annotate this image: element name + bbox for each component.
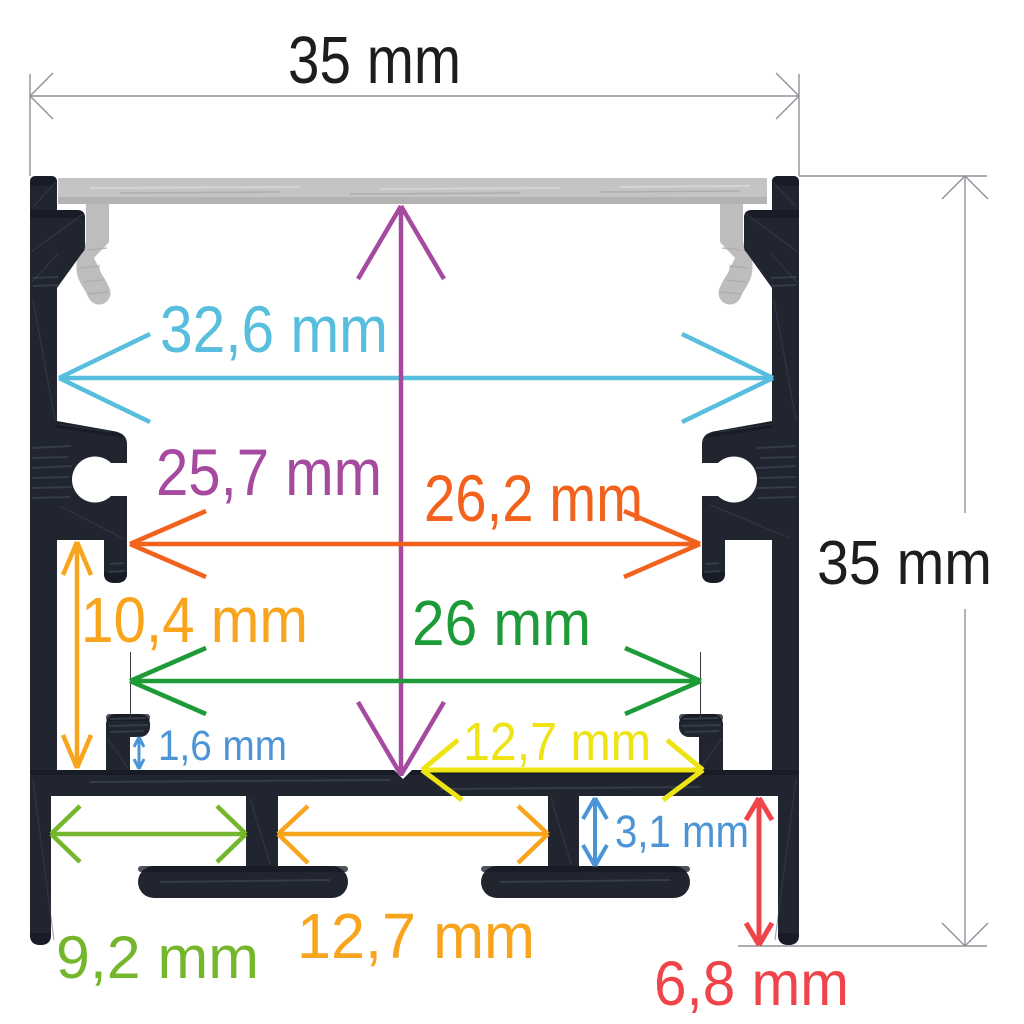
- svg-text:10,4 mm: 10,4 mm: [81, 584, 308, 656]
- svg-text:1,6 mm: 1,6 mm: [158, 722, 287, 770]
- svg-text:35 mm: 35 mm: [817, 529, 992, 598]
- svg-text:12,7 mm: 12,7 mm: [297, 900, 535, 972]
- svg-text:3,1 mm: 3,1 mm: [615, 806, 749, 857]
- svg-text:25,7 mm: 25,7 mm: [156, 435, 382, 509]
- svg-text:32,6 mm: 32,6 mm: [160, 292, 388, 366]
- svg-text:12,7 mm: 12,7 mm: [463, 712, 651, 772]
- svg-text:26 mm: 26 mm: [412, 587, 591, 659]
- svg-text:26,2 mm: 26,2 mm: [424, 461, 643, 535]
- svg-text:9,2 mm: 9,2 mm: [56, 924, 259, 991]
- svg-text:35 mm: 35 mm: [288, 23, 461, 98]
- svg-text:6,8 mm: 6,8 mm: [654, 949, 849, 1019]
